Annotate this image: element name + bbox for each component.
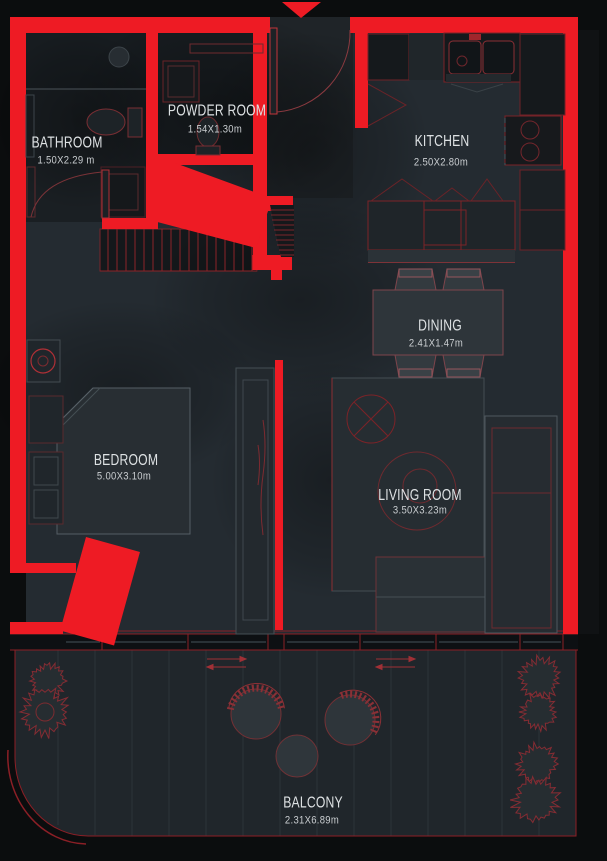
- svg-text:LIVING ROOM: LIVING ROOM: [378, 485, 461, 503]
- svg-text:2.31X6.89m: 2.31X6.89m: [285, 815, 339, 827]
- svg-text:2.41X1.47m: 2.41X1.47m: [409, 338, 463, 350]
- svg-text:POWDER ROOM: POWDER ROOM: [168, 101, 266, 119]
- svg-text:KITCHEN: KITCHEN: [415, 131, 470, 149]
- svg-text:1.50X2.29 m: 1.50X2.29 m: [37, 155, 94, 167]
- svg-text:DINING: DINING: [418, 316, 462, 334]
- svg-text:BATHROOM: BATHROOM: [31, 133, 102, 151]
- svg-text:5.00X3.10m: 5.00X3.10m: [97, 471, 151, 483]
- svg-text:3.50X3.23m: 3.50X3.23m: [393, 505, 447, 517]
- svg-text:1.54X1.30m: 1.54X1.30m: [188, 124, 242, 136]
- svg-text:2.50X2.80m: 2.50X2.80m: [414, 157, 468, 169]
- svg-text:BEDROOM: BEDROOM: [94, 450, 158, 468]
- svg-text:BALCONY: BALCONY: [283, 793, 343, 811]
